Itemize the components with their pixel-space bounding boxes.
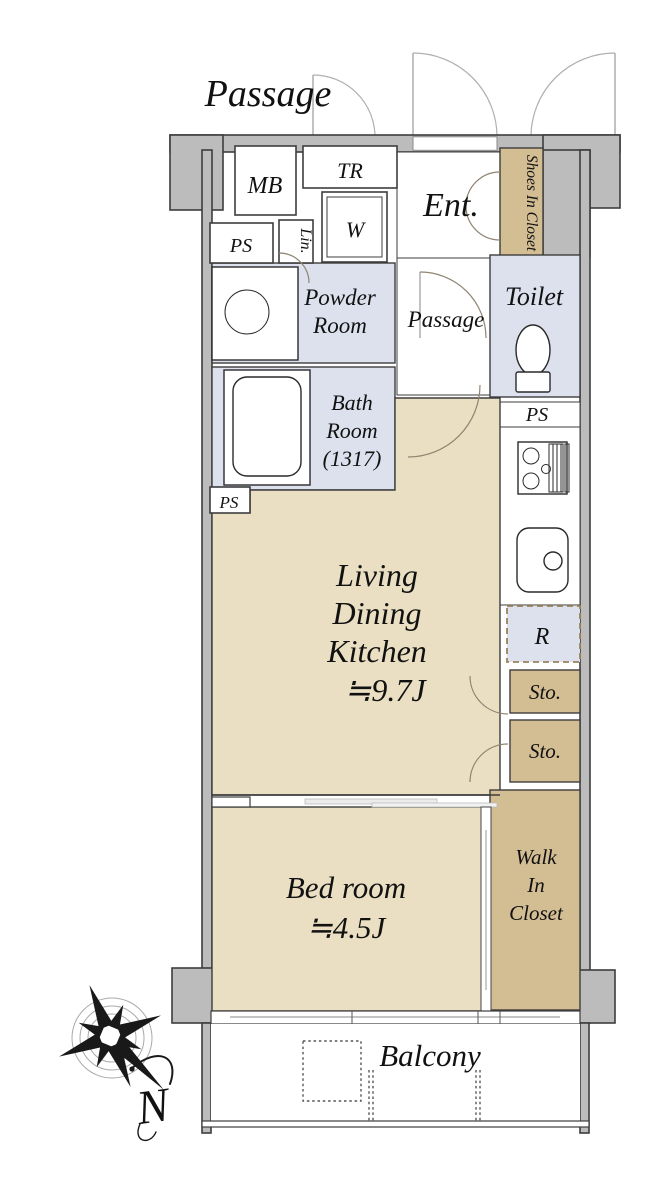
corridor-label: Passage: [204, 73, 332, 115]
wall-balcony-right: [580, 1023, 589, 1133]
stove-icon: [518, 442, 569, 494]
ps-top-label: PS: [229, 235, 252, 257]
entry-door-opening: [413, 137, 497, 151]
storage-label-2: Sto.: [529, 739, 561, 763]
compass-north-label: N: [132, 1078, 175, 1135]
washer-label: W: [346, 217, 366, 242]
balcony-railing: [202, 1121, 589, 1127]
storage-label-1: Sto.: [529, 680, 561, 704]
ps-bath-label: PS: [219, 493, 239, 512]
toilet-label: Toilet: [505, 282, 564, 311]
sliding-panel-2: [372, 803, 497, 807]
bath-room-label-2: Room: [325, 418, 377, 443]
wall-left: [202, 150, 212, 1023]
powder-room-label-1: Powder: [303, 285, 377, 310]
wic-label-1: Walk: [515, 845, 557, 869]
balcony-label: Balcony: [379, 1038, 481, 1073]
powder-room-label-2: Room: [312, 313, 367, 338]
mb-label: MB: [247, 173, 283, 199]
floor-plan: Passage MB TR Ent. Shoes In Closet PS Li…: [0, 0, 647, 1200]
floor-plan-canvas: Passage MB TR Ent. Shoes In Closet PS Li…: [0, 0, 647, 1200]
wall-balcony-left: [202, 1023, 211, 1133]
toilet-icon: [516, 325, 550, 392]
washing-machine-icon: [212, 267, 298, 360]
wic-label-2: In: [526, 873, 545, 897]
bath-room-label-1: Bath: [331, 390, 373, 415]
sink-icon: [517, 528, 568, 592]
room-bedroom: [212, 807, 482, 1011]
wic-label-3: Closet: [509, 901, 564, 925]
inner-passage-label: Passage: [407, 307, 485, 332]
tr-label: TR: [337, 158, 363, 183]
ldk-label-2: Dining: [332, 595, 422, 631]
wall-right: [580, 150, 590, 1023]
entrance-label: Ent.: [422, 187, 479, 224]
bath-room-label-3: (1317): [323, 446, 382, 471]
bedroom-label-2: ≒4.5J: [307, 910, 387, 945]
ldk-label-1: Living: [335, 557, 418, 593]
wall-pillar-top-left: [170, 135, 223, 210]
ldk-label-4: ≒9.7J: [344, 672, 427, 708]
corridor-door-icon: [313, 53, 615, 137]
room-walk-in-closet: [490, 790, 580, 1010]
ps-toilet-label: PS: [525, 404, 548, 426]
shoes-closet-label: Shoes In Closet: [523, 155, 540, 252]
bedroom-door-stub: [212, 797, 250, 807]
bathtub-icon: [224, 370, 310, 485]
fridge-label: R: [534, 624, 550, 650]
ldk-label-3: Kitchen: [326, 633, 427, 669]
linen-label: Lin.: [297, 227, 314, 253]
bedroom-label-1: Bed room: [286, 870, 406, 905]
